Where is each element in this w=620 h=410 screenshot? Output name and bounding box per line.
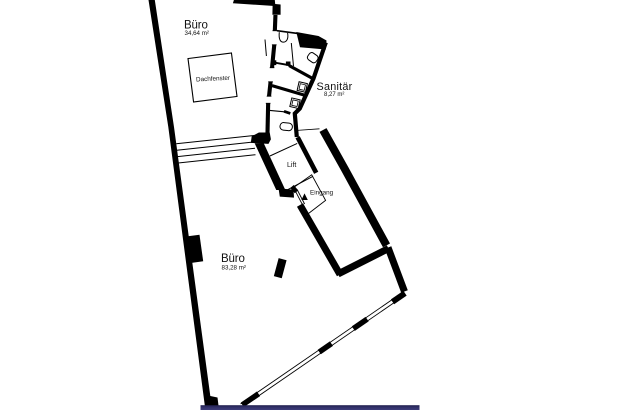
svg-text:83,28 m²: 83,28 m²: [222, 265, 246, 272]
svg-text:Lift: Lift: [287, 162, 296, 169]
svg-text:Büro: Büro: [221, 253, 245, 265]
svg-text:34,64 m²: 34,64 m²: [185, 30, 209, 37]
svg-text:Eingang: Eingang: [310, 189, 334, 196]
svg-text:8,27 m²: 8,27 m²: [324, 92, 344, 98]
